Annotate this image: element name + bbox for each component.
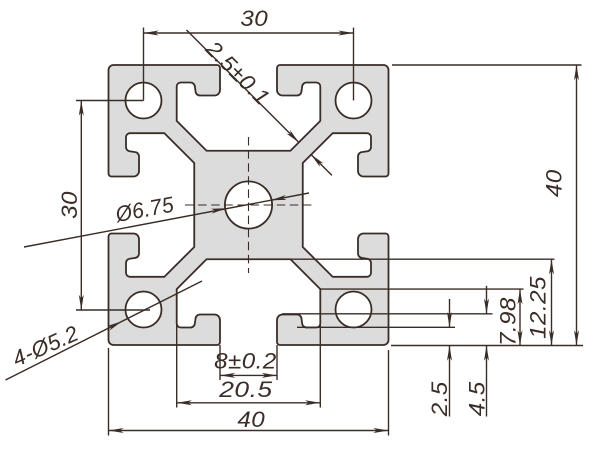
svg-text:40: 40 <box>542 169 567 197</box>
svg-text:30: 30 <box>240 6 268 31</box>
svg-text:2.5: 2.5 <box>427 381 452 417</box>
svg-text:30: 30 <box>57 191 82 219</box>
svg-text:40: 40 <box>237 407 265 432</box>
svg-text:Ø6.75: Ø6.75 <box>113 192 176 227</box>
svg-text:12.25: 12.25 <box>526 276 551 339</box>
svg-text:8±0.2: 8±0.2 <box>214 349 277 374</box>
svg-text:20.5: 20.5 <box>218 378 272 402</box>
svg-text:4.5: 4.5 <box>465 381 490 416</box>
svg-text:4-Ø5.2: 4-Ø5.2 <box>8 320 82 371</box>
svg-text:7.98: 7.98 <box>496 297 521 346</box>
